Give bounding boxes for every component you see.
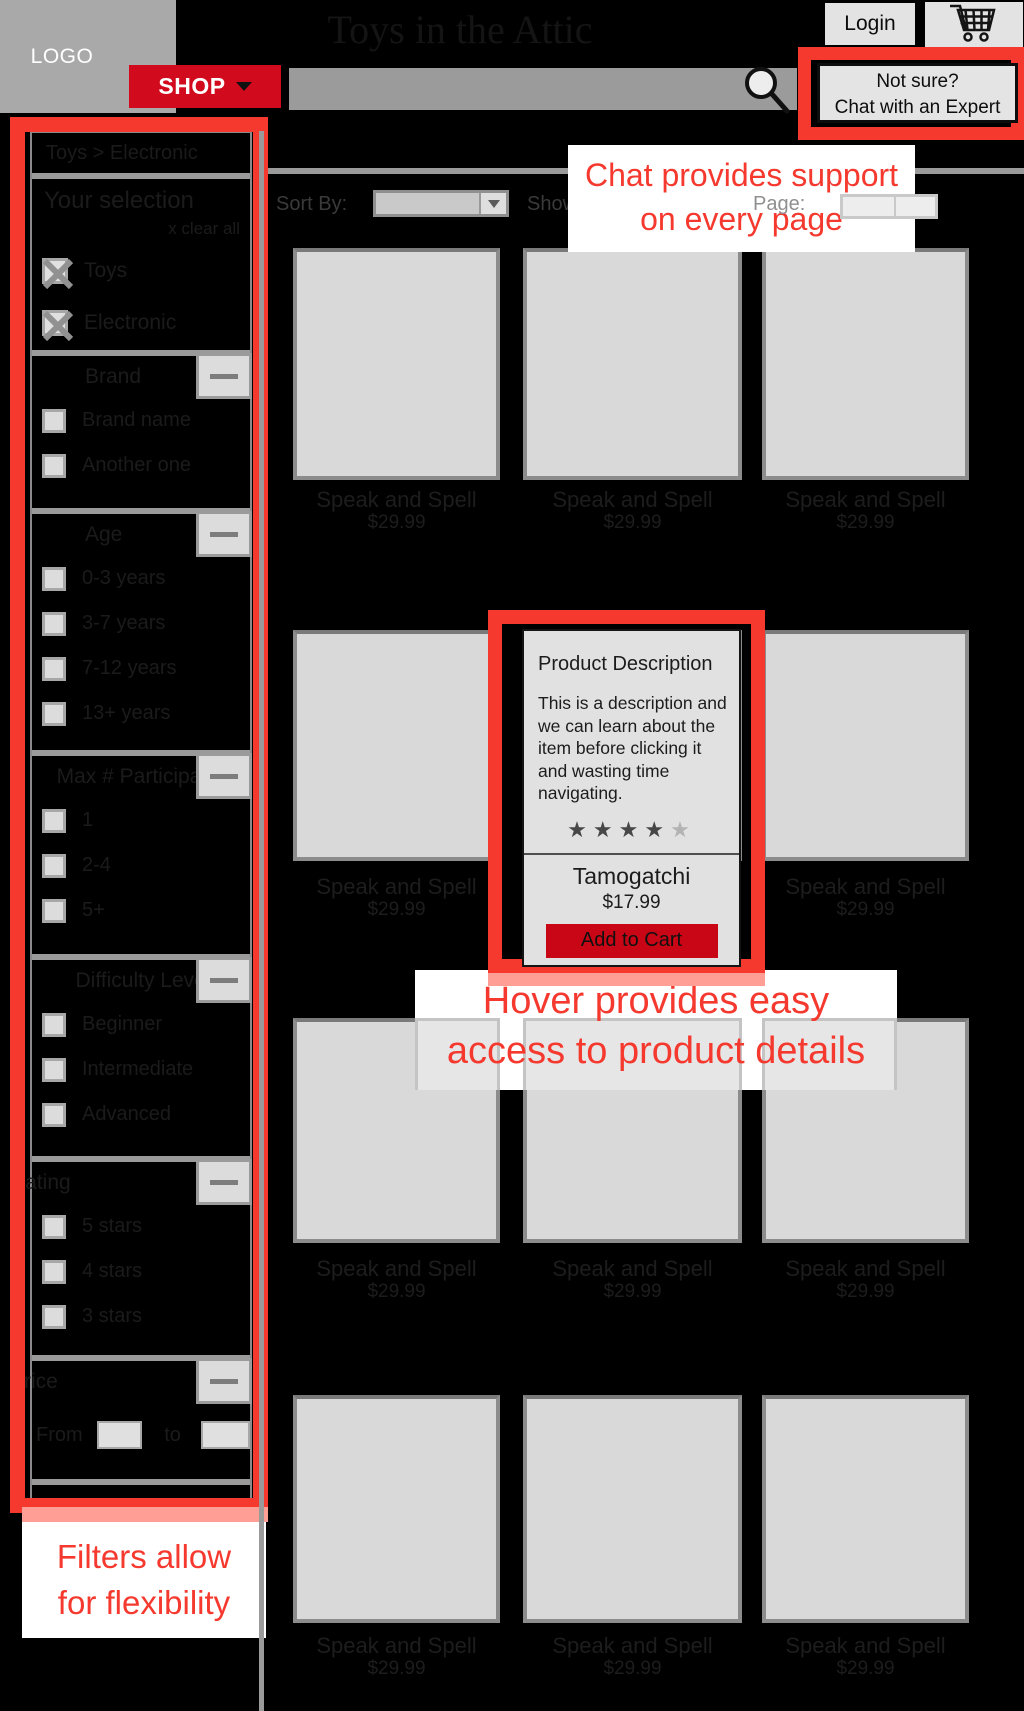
product-price: $29.99 bbox=[742, 1281, 989, 1303]
page-number-stepper[interactable] bbox=[840, 194, 938, 219]
page-title: Toys in the Attic bbox=[250, 6, 670, 53]
logo-label: LOGO bbox=[31, 45, 94, 69]
product-image[interactable] bbox=[523, 1395, 742, 1623]
chat-line-1: Not sure? bbox=[820, 69, 1015, 95]
chat-with-expert-button[interactable]: Not sure? Chat with an Expert bbox=[817, 63, 1018, 123]
product-caption: Speak and Spell$29.99 bbox=[742, 488, 989, 534]
star-empty-icon: ★ bbox=[670, 817, 696, 842]
search-input[interactable] bbox=[289, 68, 797, 110]
product-name: Speak and Spell bbox=[503, 1257, 762, 1281]
product-image[interactable] bbox=[523, 248, 742, 480]
filters-annotation: Filters allow for flexibility bbox=[22, 1522, 266, 1638]
login-label: Login bbox=[844, 12, 895, 36]
toys-in-the-attic-wireframe: LOGO Toys in the Attic Login SHOP Not su… bbox=[0, 0, 1024, 1711]
product-price: $29.99 bbox=[503, 1658, 762, 1680]
product-image[interactable] bbox=[762, 248, 969, 480]
product-caption: Speak and Spell$29.99 bbox=[503, 488, 762, 534]
product-price: $29.99 bbox=[273, 1658, 520, 1680]
product-image[interactable] bbox=[293, 248, 500, 480]
shopping-cart-icon bbox=[946, 0, 1002, 49]
product-caption: Speak and Spell$29.99 bbox=[742, 1257, 989, 1303]
hover-frame-shadow bbox=[488, 973, 765, 986]
product-image[interactable] bbox=[762, 630, 969, 861]
product-name: Speak and Spell bbox=[742, 488, 989, 512]
product-caption: Speak and Spell$29.99 bbox=[503, 1257, 762, 1303]
product-caption: Speak and Spell$29.99 bbox=[273, 1257, 520, 1303]
product-name: Speak and Spell bbox=[273, 1634, 520, 1658]
product-price: $29.99 bbox=[273, 1281, 520, 1303]
product-caption: Speak and Spell$29.99 bbox=[273, 1634, 520, 1680]
sort-by-label: Sort By: bbox=[276, 193, 347, 216]
product-price: $29.99 bbox=[742, 899, 989, 921]
product-name: Speak and Spell bbox=[503, 488, 762, 512]
dropdown-arrow-icon[interactable] bbox=[479, 193, 506, 214]
star-filled-icon: ★ bbox=[593, 817, 619, 842]
star-filled-icon: ★ bbox=[619, 817, 645, 842]
product-caption: Speak and Spell$29.99 bbox=[742, 1634, 989, 1680]
product-caption: Speak and Spell$29.99 bbox=[273, 875, 520, 921]
sort-dropdown[interactable] bbox=[373, 190, 509, 217]
filters-frame-shadow bbox=[22, 1507, 268, 1522]
product-image[interactable] bbox=[293, 1395, 500, 1623]
product-price: $29.99 bbox=[273, 899, 520, 921]
product-name: Speak and Spell bbox=[273, 875, 520, 899]
card-divider bbox=[524, 853, 739, 855]
product-name: Speak and Spell bbox=[503, 1634, 762, 1658]
filters-annotation-frame bbox=[10, 117, 268, 1513]
product-name: Speak and Spell bbox=[273, 1257, 520, 1281]
product-description-text: This is a description and we can learn a… bbox=[538, 692, 729, 805]
chevron-down-icon bbox=[236, 82, 252, 91]
product-name: Speak and Spell bbox=[273, 488, 520, 512]
hover-annotation: Hover provides easy access to product de… bbox=[415, 970, 897, 1090]
cart-button[interactable] bbox=[925, 2, 1023, 47]
product-caption: Speak and Spell$29.99 bbox=[742, 875, 989, 921]
product-name: Speak and Spell bbox=[742, 1634, 989, 1658]
shop-label: SHOP bbox=[158, 73, 225, 100]
filters-annotation-line2: for flexibility bbox=[22, 1580, 266, 1626]
star-rating: ★★★★★ bbox=[524, 817, 739, 843]
product-description-title: Product Description bbox=[538, 653, 739, 676]
chat-annotation-line1: Chat provides support bbox=[568, 153, 915, 197]
product-price: $29.99 bbox=[742, 1658, 989, 1680]
product-price: $29.99 bbox=[273, 512, 520, 534]
product-caption: Speak and Spell$29.99 bbox=[503, 1634, 762, 1680]
star-filled-icon: ★ bbox=[644, 817, 670, 842]
product-name: Speak and Spell bbox=[742, 875, 989, 899]
product-hover-card: Product Description This is a descriptio… bbox=[522, 629, 741, 967]
add-to-cart-button[interactable]: Add to Cart bbox=[546, 924, 718, 958]
star-filled-icon: ★ bbox=[567, 817, 593, 842]
chat-line-2: Chat with an Expert bbox=[820, 95, 1015, 121]
filters-annotation-line1: Filters allow bbox=[22, 1534, 266, 1580]
product-image[interactable] bbox=[762, 1395, 969, 1623]
hover-annotation-line2: access to product details bbox=[415, 1026, 897, 1076]
search-icon[interactable] bbox=[742, 66, 794, 118]
product-price: $29.99 bbox=[503, 1281, 762, 1303]
product-name: Speak and Spell bbox=[742, 1257, 989, 1281]
product-caption: Speak and Spell$29.99 bbox=[273, 488, 520, 534]
popup-product-name: Tamogatchi bbox=[524, 863, 739, 890]
page-label: Page: bbox=[753, 193, 805, 216]
product-image[interactable] bbox=[293, 630, 500, 861]
shop-button[interactable]: SHOP bbox=[129, 65, 281, 108]
product-price: $29.99 bbox=[742, 512, 989, 534]
popup-product-price: $17.99 bbox=[524, 892, 739, 914]
login-button[interactable]: Login bbox=[825, 3, 915, 45]
product-price: $29.99 bbox=[503, 512, 762, 534]
sidebar-separator-line bbox=[259, 131, 264, 1711]
